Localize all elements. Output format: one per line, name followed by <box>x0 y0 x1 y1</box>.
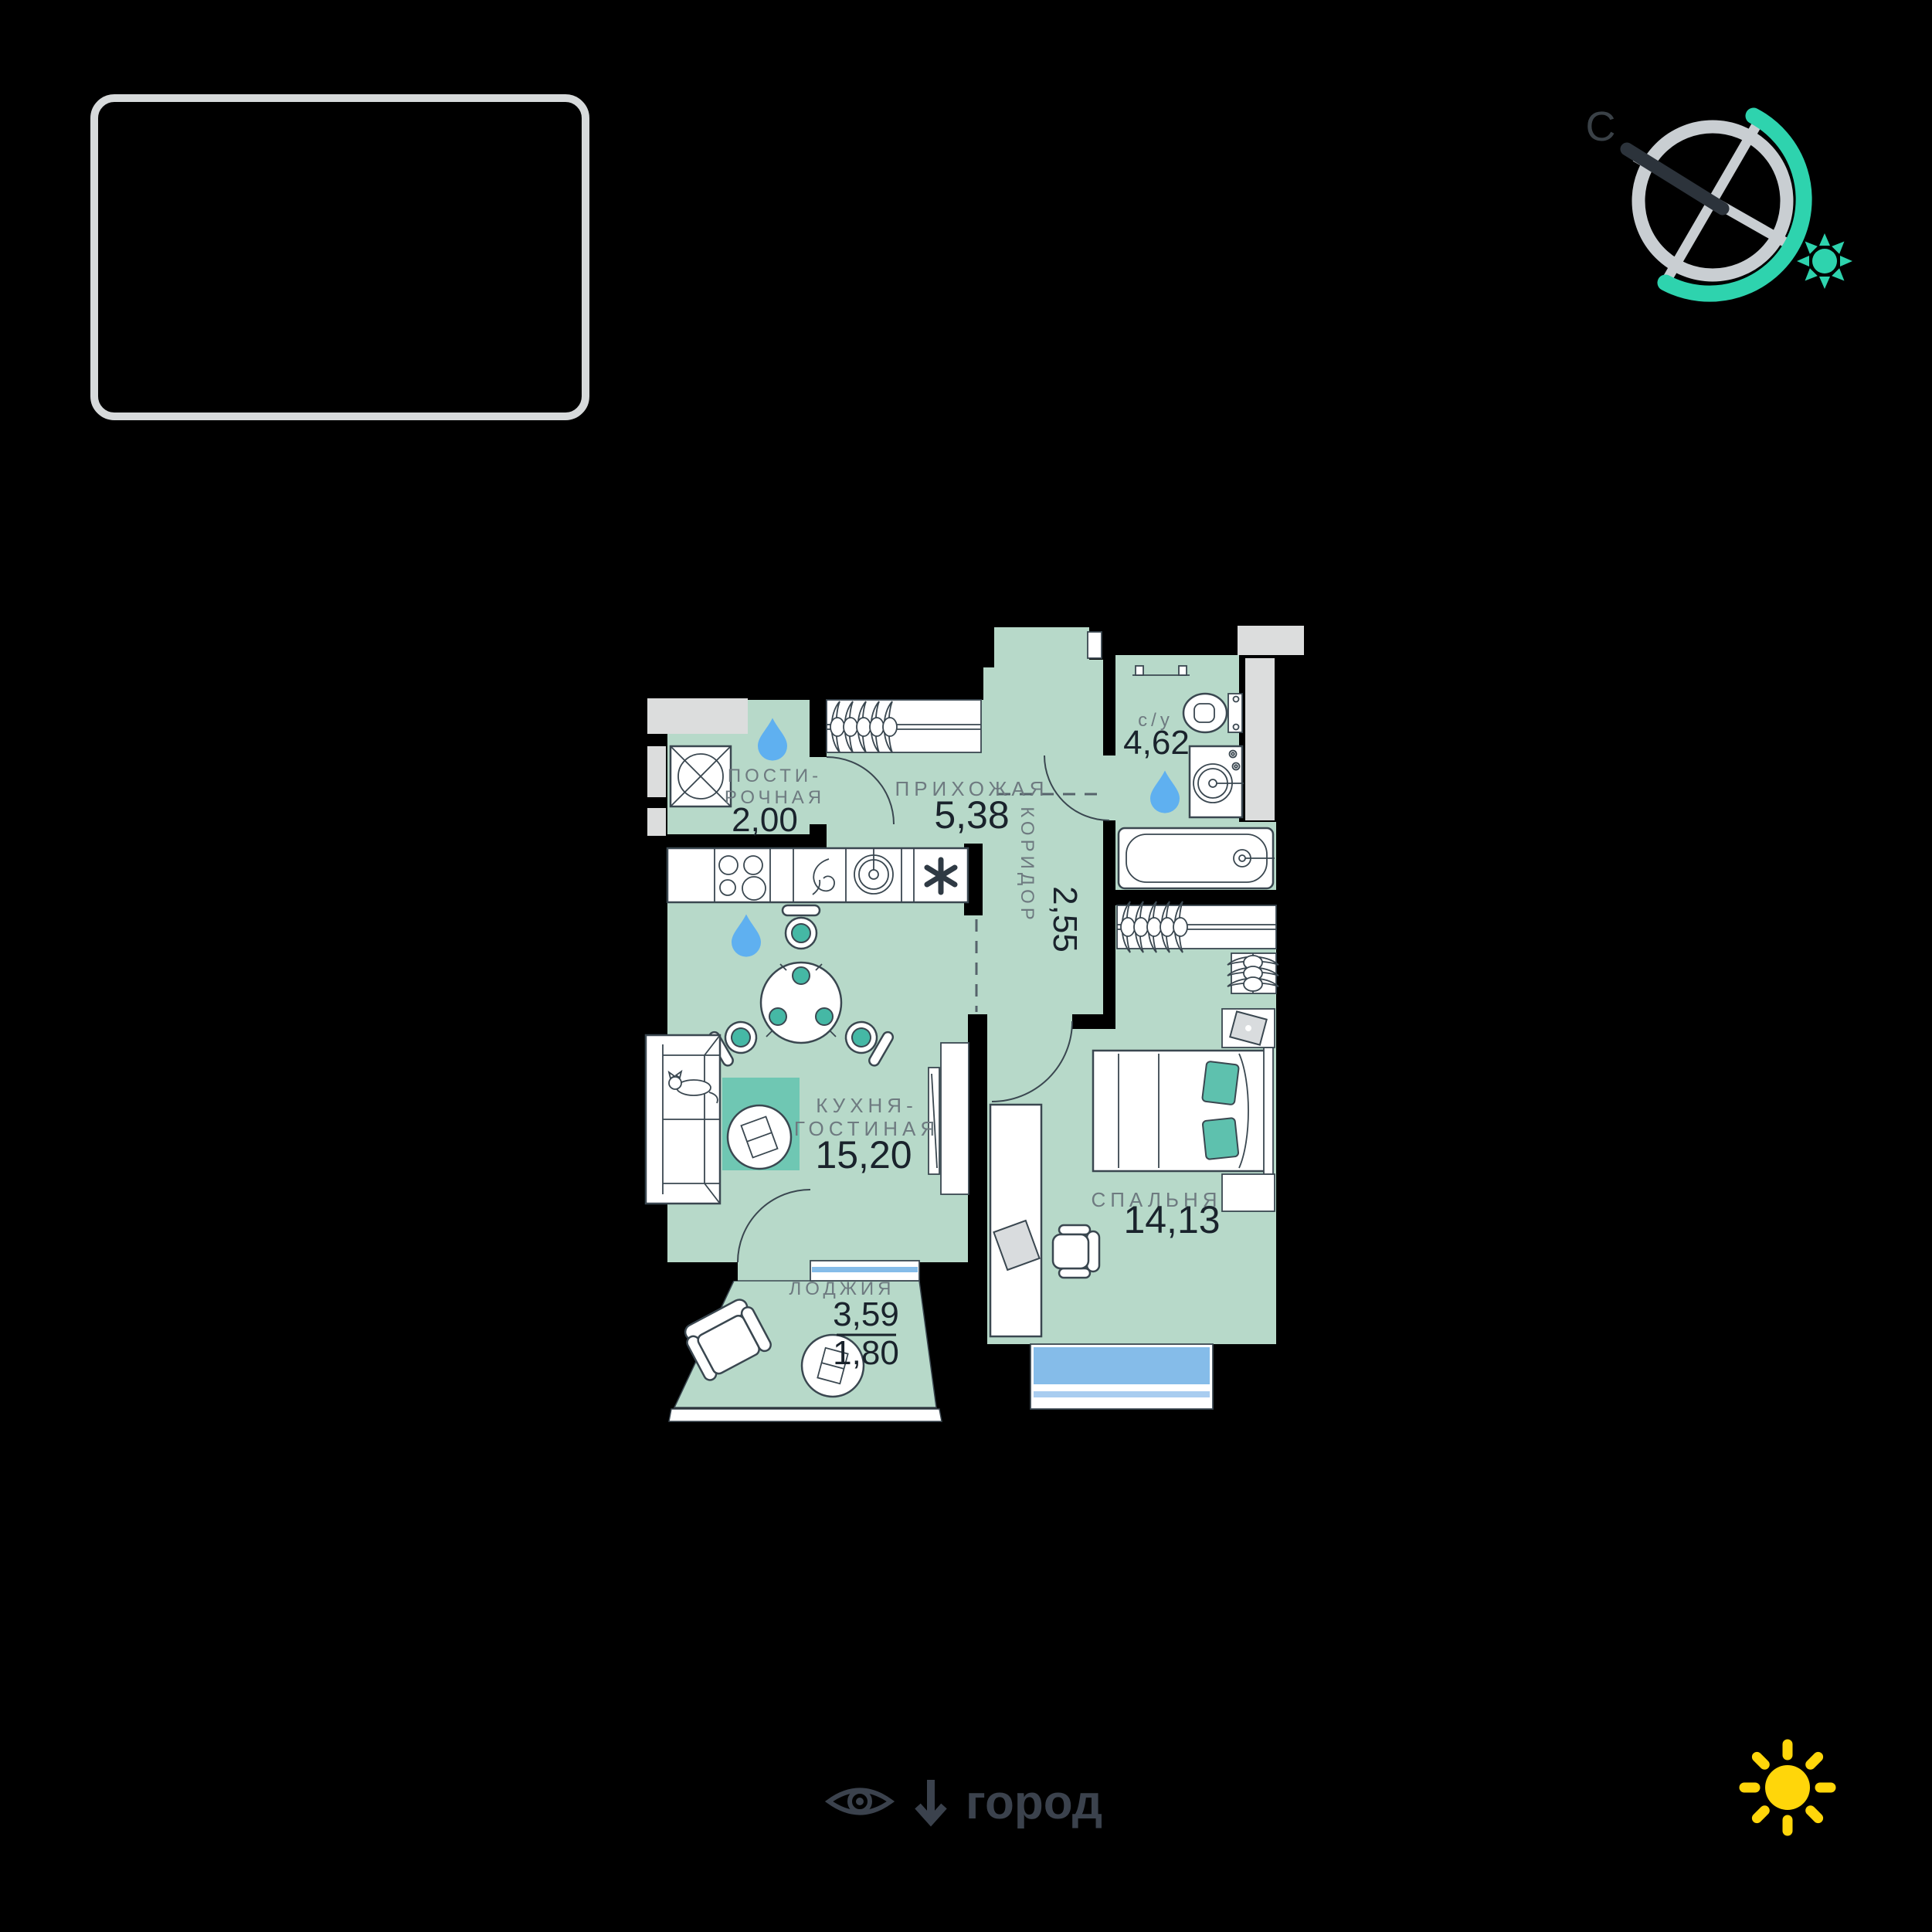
floorplan-scene: С <box>0 0 1932 1932</box>
sofa <box>646 1035 720 1204</box>
wall <box>1103 890 1296 905</box>
wall <box>969 1344 1034 1363</box>
double-bed <box>1093 1047 1273 1174</box>
corridor-label: КОРИДОР <box>1017 806 1037 924</box>
wall <box>649 680 810 700</box>
wall <box>810 700 827 757</box>
wall <box>919 1262 969 1281</box>
entry-door-leaf <box>1088 632 1102 658</box>
wall <box>1103 655 1115 755</box>
shaft-block <box>1245 658 1275 820</box>
shaft-block <box>1238 626 1304 655</box>
nightstand-with-lamp <box>1222 1009 1275 1047</box>
loggia-outer-sill <box>669 1409 942 1421</box>
shaft-block <box>647 746 666 797</box>
hallway-wardrobe <box>827 700 981 752</box>
floorplan-viewer-canvas: С <box>0 0 1932 1932</box>
corridor-area: 2,55 <box>1046 886 1084 952</box>
compass-sun-icon <box>1797 233 1852 289</box>
desk <box>990 1105 1041 1336</box>
loggia-area-full: 3,59 <box>833 1295 899 1333</box>
wall <box>969 1014 987 1344</box>
shaft-block <box>647 698 748 734</box>
sun-icon <box>1744 1744 1831 1831</box>
bathtub-icon <box>1119 828 1275 888</box>
kitchen-living-area: 15,20 <box>815 1133 912 1177</box>
view-direction-label: город <box>966 1776 1102 1829</box>
wall <box>1103 820 1115 891</box>
bedroom-area: 14,13 <box>1123 1198 1220 1241</box>
toilet-icon <box>1183 694 1242 732</box>
wall <box>983 627 994 667</box>
washbasin-icon <box>1190 746 1244 817</box>
entry-niche-floor <box>994 627 1089 674</box>
washing-machine-icon <box>671 746 731 806</box>
bedroom-window <box>1031 1344 1213 1409</box>
living-rug <box>722 1078 800 1170</box>
wall <box>1103 637 1115 658</box>
compass-north-label: С <box>1586 104 1616 150</box>
bathroom-area: 4,62 <box>1123 724 1190 762</box>
hallway-area: 5,38 <box>934 793 1009 837</box>
pillow <box>1202 1061 1239 1105</box>
wall <box>1103 905 1115 1029</box>
desk-chair <box>1053 1225 1099 1278</box>
wall <box>981 616 1095 627</box>
pillow <box>1203 1118 1239 1160</box>
wall <box>1210 1344 1296 1363</box>
loggia-area-counted: 1,80 <box>833 1334 899 1372</box>
wall <box>806 638 983 700</box>
wall <box>649 1262 738 1281</box>
laundry-area: 2,00 <box>732 801 798 839</box>
kitchen-counter <box>667 848 968 902</box>
apartment-floorplan: ПОСТИ- РОЧНАЯ 2,00 ПРИХОЖАЯ 5,38 с/у 4,6… <box>646 616 1304 1421</box>
nightstand <box>1222 1174 1275 1211</box>
wall <box>1072 1014 1115 1029</box>
bedroom-wardrobe <box>1117 901 1276 952</box>
bedroom-closet-small <box>1227 953 1278 993</box>
dining-chair <box>783 905 820 949</box>
kitchen-living-label-line1: КУХНЯ- <box>816 1094 918 1117</box>
wall <box>1276 637 1296 1363</box>
laundry-label-line1: ПОСТИ- <box>728 766 822 786</box>
shaft-block <box>647 808 666 836</box>
